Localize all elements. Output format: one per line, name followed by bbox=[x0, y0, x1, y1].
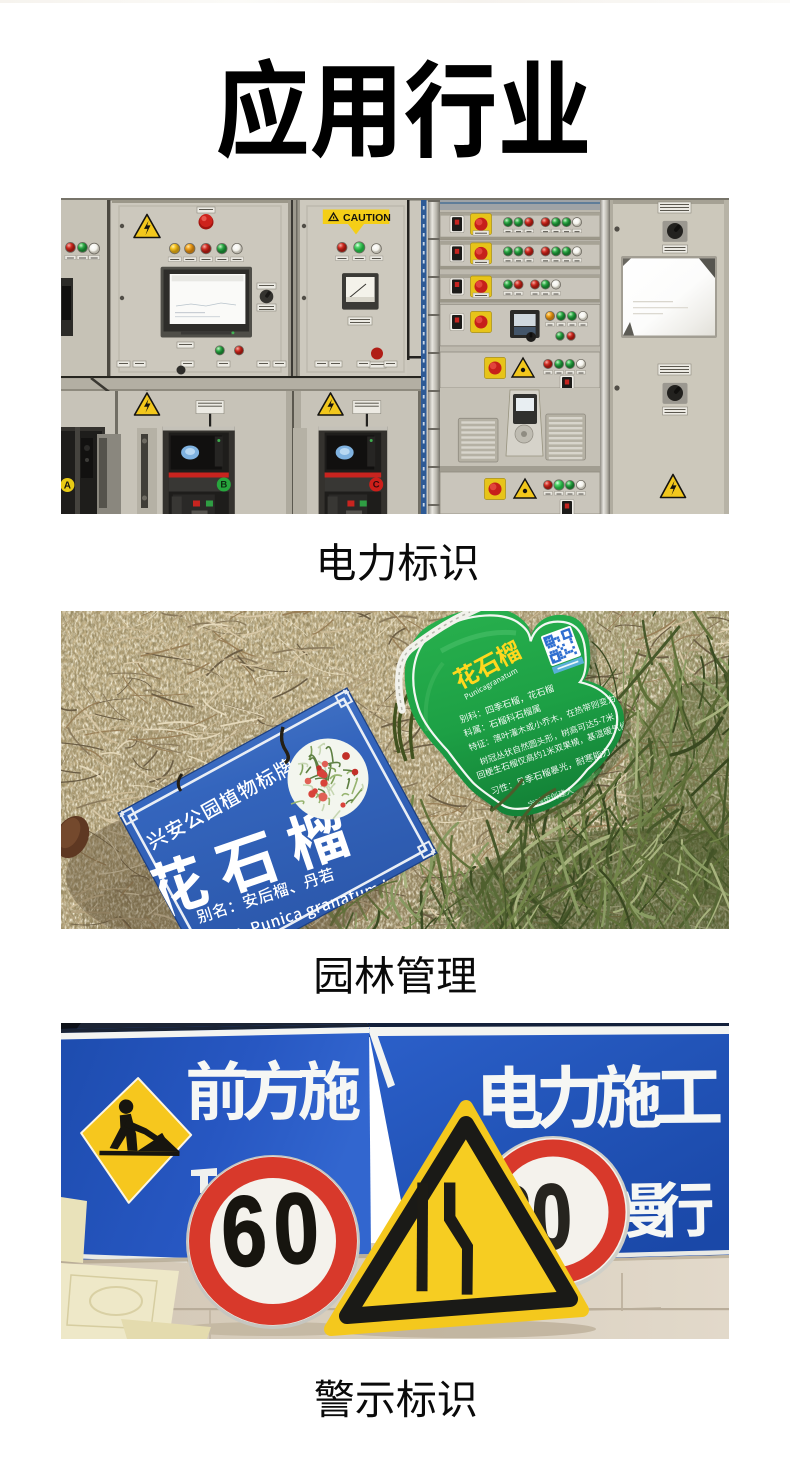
svg-text:A: A bbox=[64, 481, 71, 492]
svg-text:CAUTION: CAUTION bbox=[343, 212, 391, 224]
svg-text:C: C bbox=[373, 480, 380, 491]
svg-text:B: B bbox=[220, 480, 227, 491]
svg-text:60: 60 bbox=[219, 1172, 329, 1288]
